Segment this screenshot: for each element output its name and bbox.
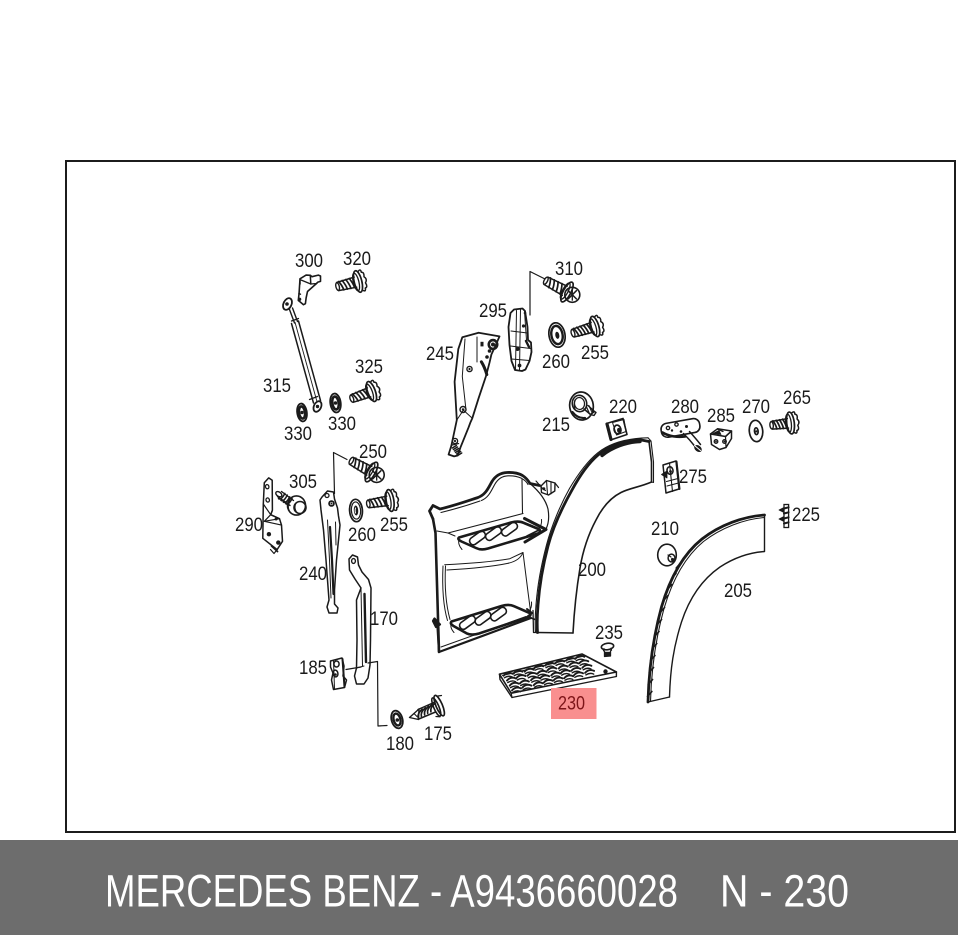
svg-text:330: 330 [284,424,312,445]
svg-text:255: 255 [380,515,408,536]
svg-text:240: 240 [299,564,327,585]
svg-text:N - 230: N - 230 [720,866,849,917]
svg-text:220: 220 [609,397,637,418]
svg-text:235: 235 [595,623,623,644]
svg-text:290: 290 [235,515,263,536]
svg-text:225: 225 [792,505,820,526]
svg-text:270: 270 [742,397,770,418]
svg-text:260: 260 [348,525,376,546]
svg-text:250: 250 [359,442,387,463]
svg-text:265: 265 [783,388,811,409]
svg-text:300: 300 [295,251,323,272]
svg-text:205: 205 [724,581,752,602]
svg-text:210: 210 [651,519,679,540]
svg-text:255: 255 [581,343,609,364]
svg-text:320: 320 [343,249,371,270]
svg-text:315: 315 [263,376,291,397]
svg-text:330: 330 [328,414,356,435]
svg-text:325: 325 [355,357,383,378]
svg-text:230: 230 [558,693,585,715]
svg-text:245: 245 [426,344,454,365]
svg-text:260: 260 [542,352,570,373]
svg-text:295: 295 [479,301,507,322]
svg-text:310: 310 [555,259,583,280]
svg-text:180: 180 [386,734,414,755]
svg-text:275: 275 [679,467,707,488]
svg-text:215: 215 [542,415,570,436]
svg-text:200: 200 [578,560,606,581]
svg-text:MERCEDES BENZ - A9436660028: MERCEDES BENZ - A9436660028 [105,866,678,917]
svg-text:175: 175 [424,724,452,745]
svg-text:170: 170 [370,609,398,630]
svg-text:185: 185 [299,658,327,679]
svg-text:285: 285 [707,406,735,427]
svg-text:305: 305 [289,472,317,493]
svg-text:280: 280 [671,397,699,418]
